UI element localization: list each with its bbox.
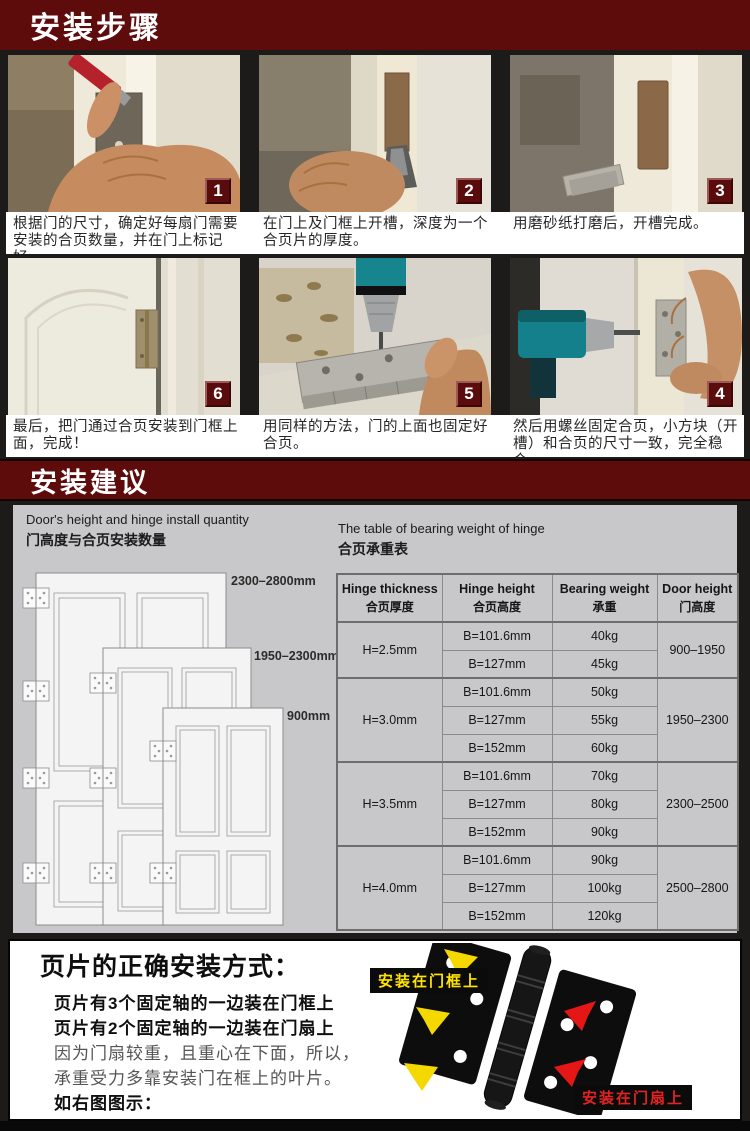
install-advice-panel: Door's height and hinge install quantity…: [13, 505, 737, 933]
step-photo-3: 3: [510, 55, 742, 212]
diagram-title-zh: 门高度与合页安装数量: [26, 530, 249, 550]
install-steps-title: 安装步骤: [30, 3, 162, 47]
step-number-badge: 4: [707, 381, 733, 407]
hinge-height-cell: B=152mm: [442, 818, 552, 846]
door-height-label-small: 900mm: [287, 709, 330, 723]
hinge-height-cell: B=101.6mm: [442, 846, 552, 874]
door-height-cell: 900–1950: [657, 622, 738, 678]
hinge-height-cell: B=127mm: [442, 650, 552, 678]
table-row: H=3.0mm B=101.6mm 50kg 1950–2300: [337, 678, 738, 706]
bearing-weight-cell: 50kg: [552, 678, 657, 706]
table-header-cell: Door height门高度: [657, 574, 738, 622]
install-text-line: 页片有3个固定轴的一边装在门框上: [54, 991, 360, 1016]
step-caption: 最后，把门通过合页安装到门框上面，完成！: [8, 419, 242, 453]
install-advice-title: 安装建议: [30, 461, 150, 500]
door-height-diagram: 2300–2800mm 1950–2300mm 900mm: [15, 559, 341, 931]
hinge-height-cell: B=152mm: [442, 902, 552, 930]
door-height-cell: 2300–2500: [657, 762, 738, 846]
step-caption: 用同样的方法，门的上面也固定好合页。: [258, 419, 492, 453]
install-text-line: 如右图图示：: [54, 1091, 360, 1116]
door-height-cell: 1950–2300: [657, 678, 738, 762]
page-footer-strip: [0, 1121, 750, 1131]
table-row: H=2.5mm B=101.6mm 40kg 900–1950: [337, 622, 738, 650]
step-photo-row-1: 1 2: [0, 55, 750, 212]
hinge-height-cell: B=127mm: [442, 874, 552, 902]
correct-install-panel: 页片的正确安装方式： 页片有3个固定轴的一边装在门框上 页片有2个固定轴的一边装…: [8, 939, 742, 1121]
table-header-cell: Bearing weight承重: [552, 574, 657, 622]
step-caption: 在门上及门框上开槽，深度为一个合页片的厚度。: [258, 216, 492, 250]
door-height-cell: 2500–2800: [657, 846, 738, 930]
section-header-install-steps: 安装步骤: [0, 0, 750, 50]
bearing-weight-cell: 70kg: [552, 762, 657, 790]
install-text-line: 承重受力多靠安装门在框上的叶片。: [54, 1066, 360, 1091]
install-text-line: 因为门扇较重，且重心在下面，所以，: [54, 1041, 360, 1066]
hinge-height-cell: B=127mm: [442, 790, 552, 818]
step-caption: 用磨砂纸打磨后，开槽完成。: [508, 216, 742, 250]
step-caption: 根据门的尺寸，确定好每扇门需要安装的合页数量，并在门上标记好。: [8, 216, 242, 250]
bearing-weight-cell: 60kg: [552, 734, 657, 762]
step-photo-2: 2: [259, 55, 491, 212]
table-header-cell: Hinge thickness合页厚度: [337, 574, 442, 622]
step-photo-row-2: 6 5: [0, 258, 750, 415]
door-height-label-large: 2300–2800mm: [231, 574, 316, 588]
step-caption-row-2: 最后，把门通过合页安装到门框上面，完成！ 用同样的方法，门的上面也固定好合页。 …: [6, 415, 744, 457]
hinge-thickness-cell: H=3.5mm: [337, 762, 442, 846]
step-photo-5: 5: [259, 258, 491, 415]
bearing-weight-cell: 45kg: [552, 650, 657, 678]
step-number-badge: 6: [205, 381, 231, 407]
hinge-thickness-cell: H=3.0mm: [337, 678, 442, 762]
step-photo-4: 4: [510, 258, 742, 415]
hinge-height-cell: B=101.6mm: [442, 762, 552, 790]
hinge-height-cell: B=101.6mm: [442, 622, 552, 650]
table-title-zh: 合页承重表: [338, 539, 545, 559]
door-height-label-middle: 1950–2300mm: [254, 649, 339, 663]
bearing-weight-cell: 80kg: [552, 790, 657, 818]
bearing-weight-cell: 90kg: [552, 846, 657, 874]
bearing-weight-table: Hinge thickness合页厚度 Hinge height合页高度 Bea…: [336, 573, 739, 931]
step-number-badge: 2: [456, 178, 482, 204]
hinge-height-cell: B=101.6mm: [442, 678, 552, 706]
door-height-diagram-title: Door's height and hinge install quantity…: [26, 512, 249, 550]
step-photo-6: 6: [8, 258, 240, 415]
hinge-height-cell: B=152mm: [442, 734, 552, 762]
step-number-badge: 3: [707, 178, 733, 204]
correct-install-heading: 页片的正确安装方式：: [40, 947, 300, 983]
install-text-line: 页片有2个固定轴的一边装在门扇上: [54, 1016, 360, 1041]
product-detail-page: 安装步骤 1: [0, 0, 750, 1131]
table-header-row: Hinge thickness合页厚度 Hinge height合页高度 Bea…: [337, 574, 738, 622]
diagram-title-en: Door's height and hinge install quantity: [26, 512, 249, 527]
bearing-weight-cell: 100kg: [552, 874, 657, 902]
table-row: H=3.5mm B=101.6mm 70kg 2300–2500: [337, 762, 738, 790]
bearing-weight-cell: 55kg: [552, 706, 657, 734]
correct-install-text: 页片有3个固定轴的一边装在门框上 页片有2个固定轴的一边装在门扇上 因为门扇较重…: [54, 991, 360, 1116]
hinge-thickness-cell: H=2.5mm: [337, 622, 442, 678]
table-title-en: The table of bearing weight of hinge: [338, 521, 545, 536]
hinge-height-cell: B=127mm: [442, 706, 552, 734]
table-header-cell: Hinge height合页高度: [442, 574, 552, 622]
install-on-leaf-label: 安装在门扇上: [574, 1085, 692, 1110]
step-photo-1: 1: [8, 55, 240, 212]
step-caption: 然后用螺丝固定合页，小方块（开槽）和合页的尺寸一致，完全稳合。: [508, 419, 742, 453]
bearing-weight-cell: 120kg: [552, 902, 657, 930]
table-row: H=4.0mm B=101.6mm 90kg 2500–2800: [337, 846, 738, 874]
section-header-install-advice: 安装建议: [0, 459, 750, 501]
install-on-frame-label: 安装在门框上: [370, 968, 488, 993]
step-number-badge: 1: [205, 178, 231, 204]
hinge-thickness-cell: H=4.0mm: [337, 846, 442, 930]
bearing-weight-cell: 90kg: [552, 818, 657, 846]
bearing-table-title: The table of bearing weight of hinge 合页承…: [338, 521, 545, 559]
bearing-weight-cell: 40kg: [552, 622, 657, 650]
step-number-badge: 5: [456, 381, 482, 407]
step-caption-row-1: 根据门的尺寸，确定好每扇门需要安装的合页数量，并在门上标记好。 在门上及门框上开…: [6, 212, 744, 254]
